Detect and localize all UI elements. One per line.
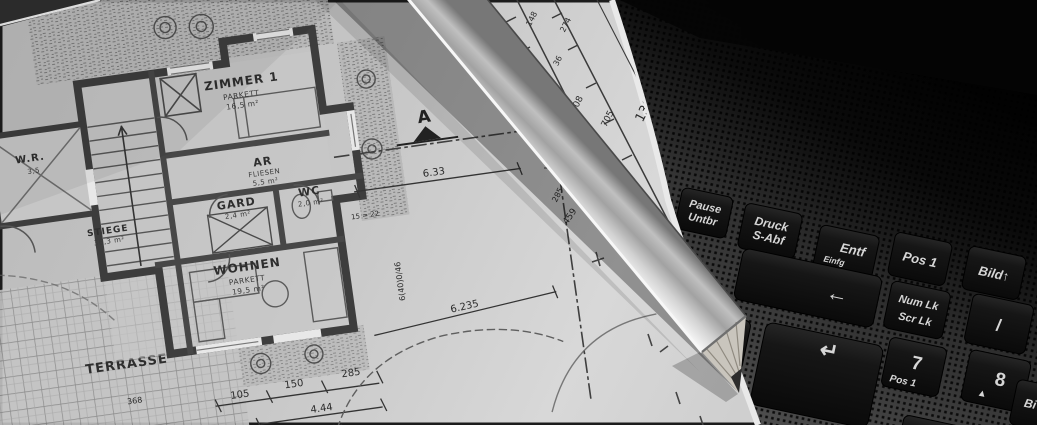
photo-floorplan-scene: Pause Untbr Druck S-Abf Entf Einfg Pos 1… bbox=[0, 0, 1037, 425]
key-bild-down-line1: Bi bbox=[1023, 396, 1037, 412]
scene-svg: Pause Untbr Druck S-Abf Entf Einfg Pos 1… bbox=[0, 0, 1037, 425]
room-label-ar: AR bbox=[252, 154, 273, 170]
